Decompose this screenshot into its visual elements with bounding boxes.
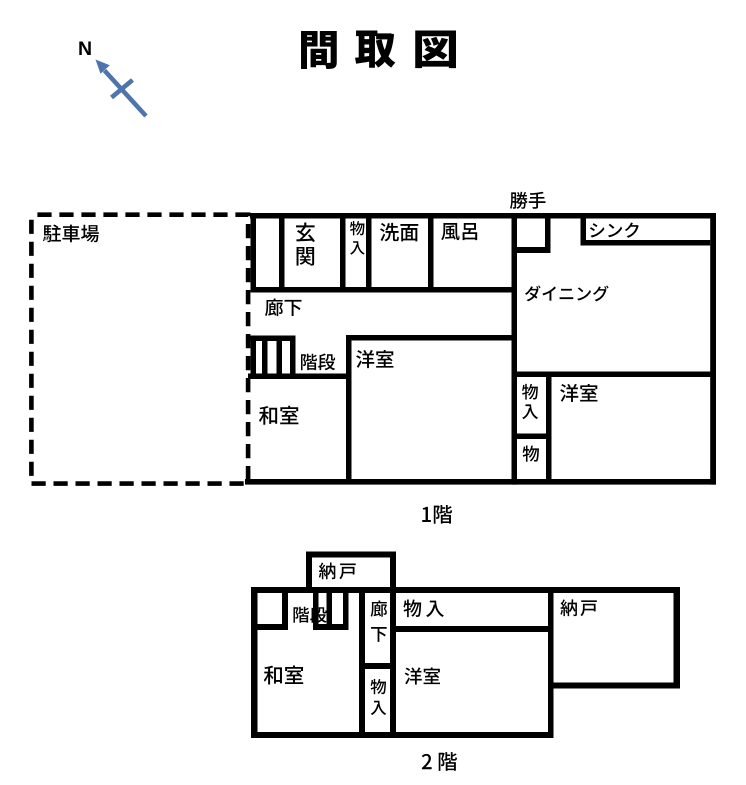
- svg-text:N: N: [78, 38, 92, 60]
